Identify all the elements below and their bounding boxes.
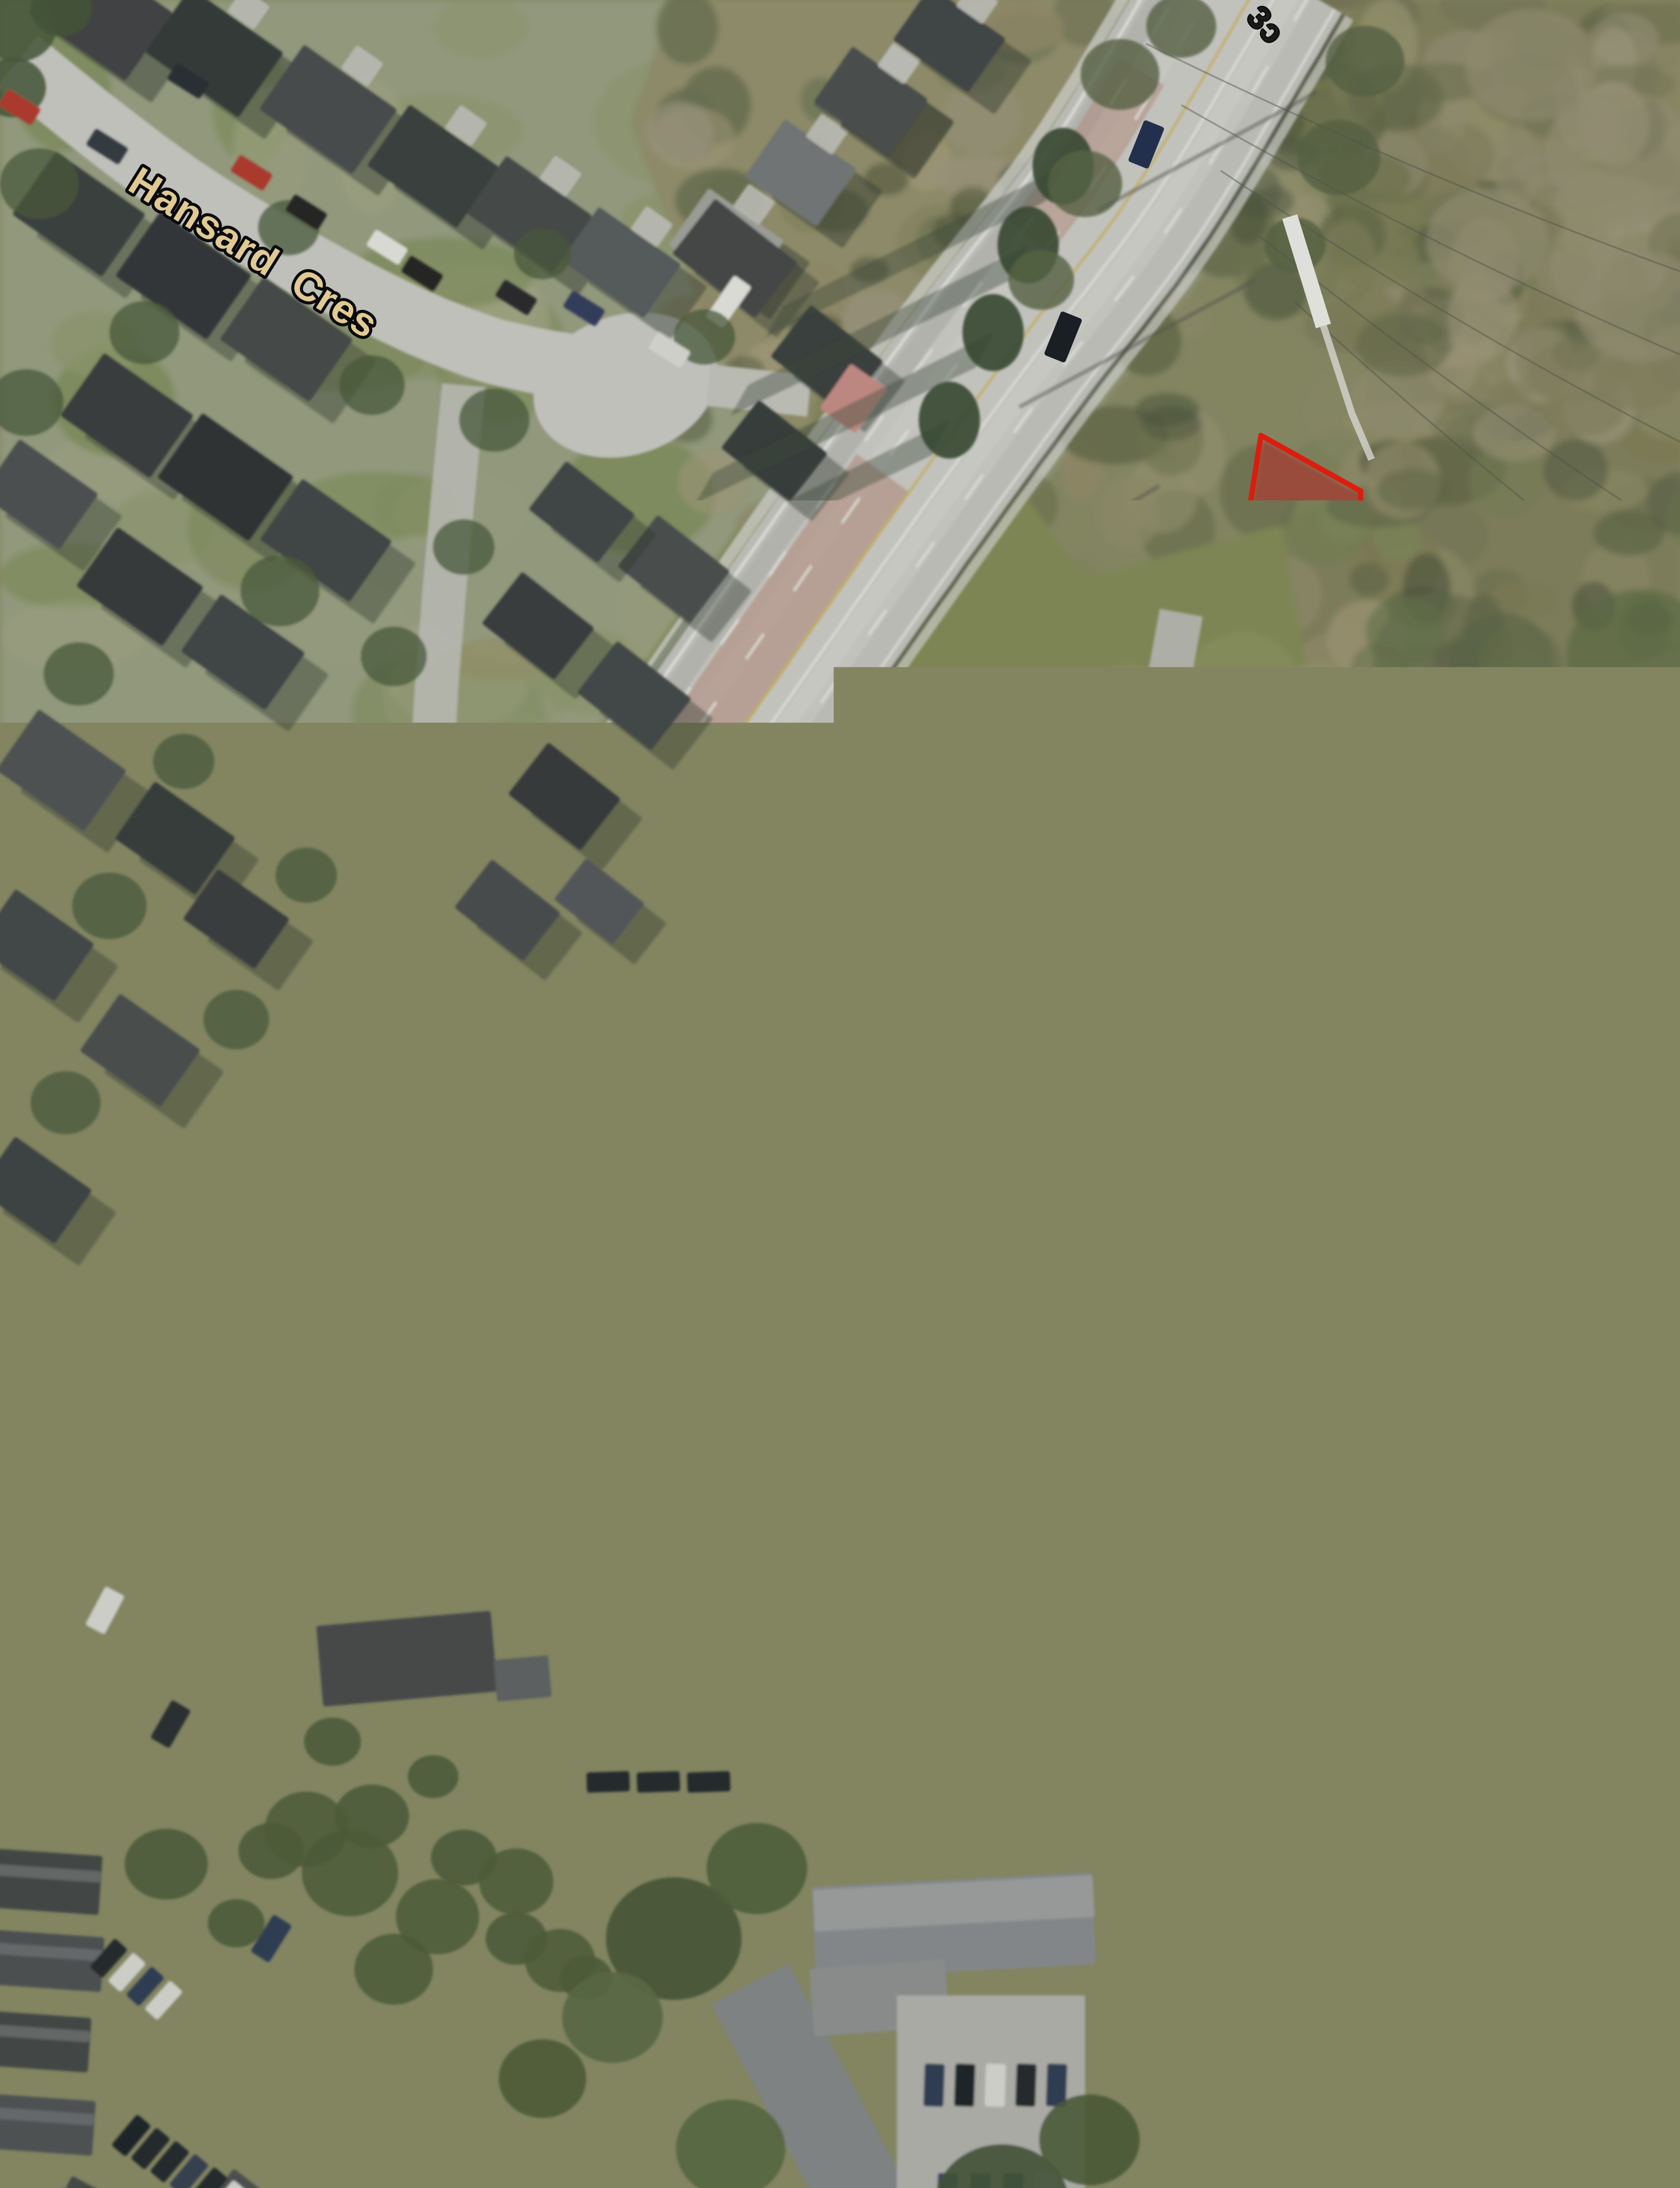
svg-text:2800: 2800	[717, 1727, 803, 1772]
